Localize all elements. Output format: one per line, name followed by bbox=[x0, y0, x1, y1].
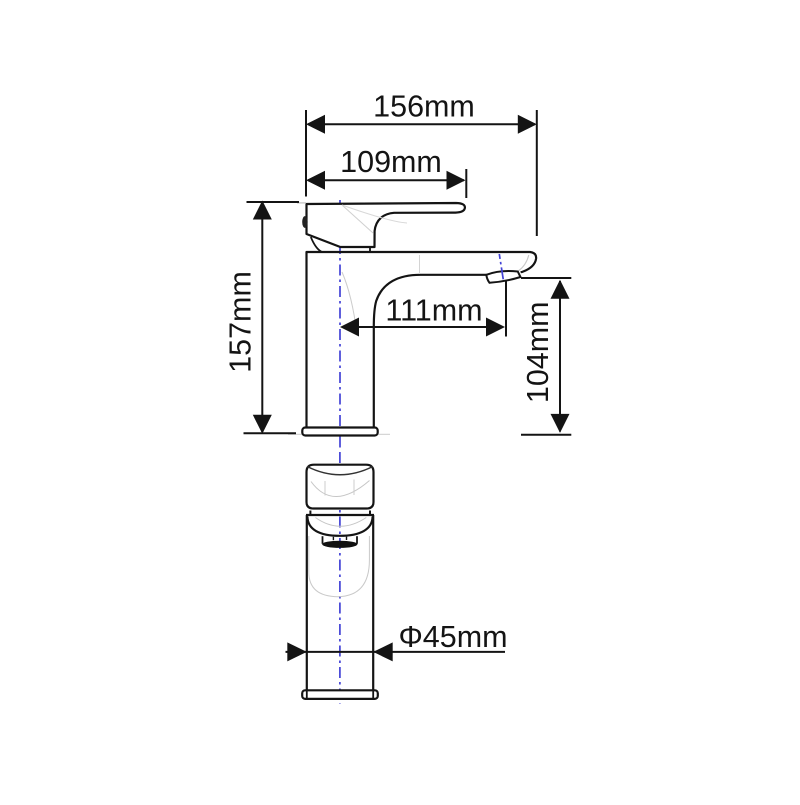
svg-text:104mm: 104mm bbox=[521, 301, 555, 403]
svg-text:109mm: 109mm bbox=[340, 145, 442, 179]
svg-text:Φ45mm: Φ45mm bbox=[398, 620, 507, 654]
svg-text:157mm: 157mm bbox=[224, 271, 258, 373]
svg-text:156mm: 156mm bbox=[373, 90, 475, 124]
svg-text:111mm: 111mm bbox=[385, 294, 482, 328]
